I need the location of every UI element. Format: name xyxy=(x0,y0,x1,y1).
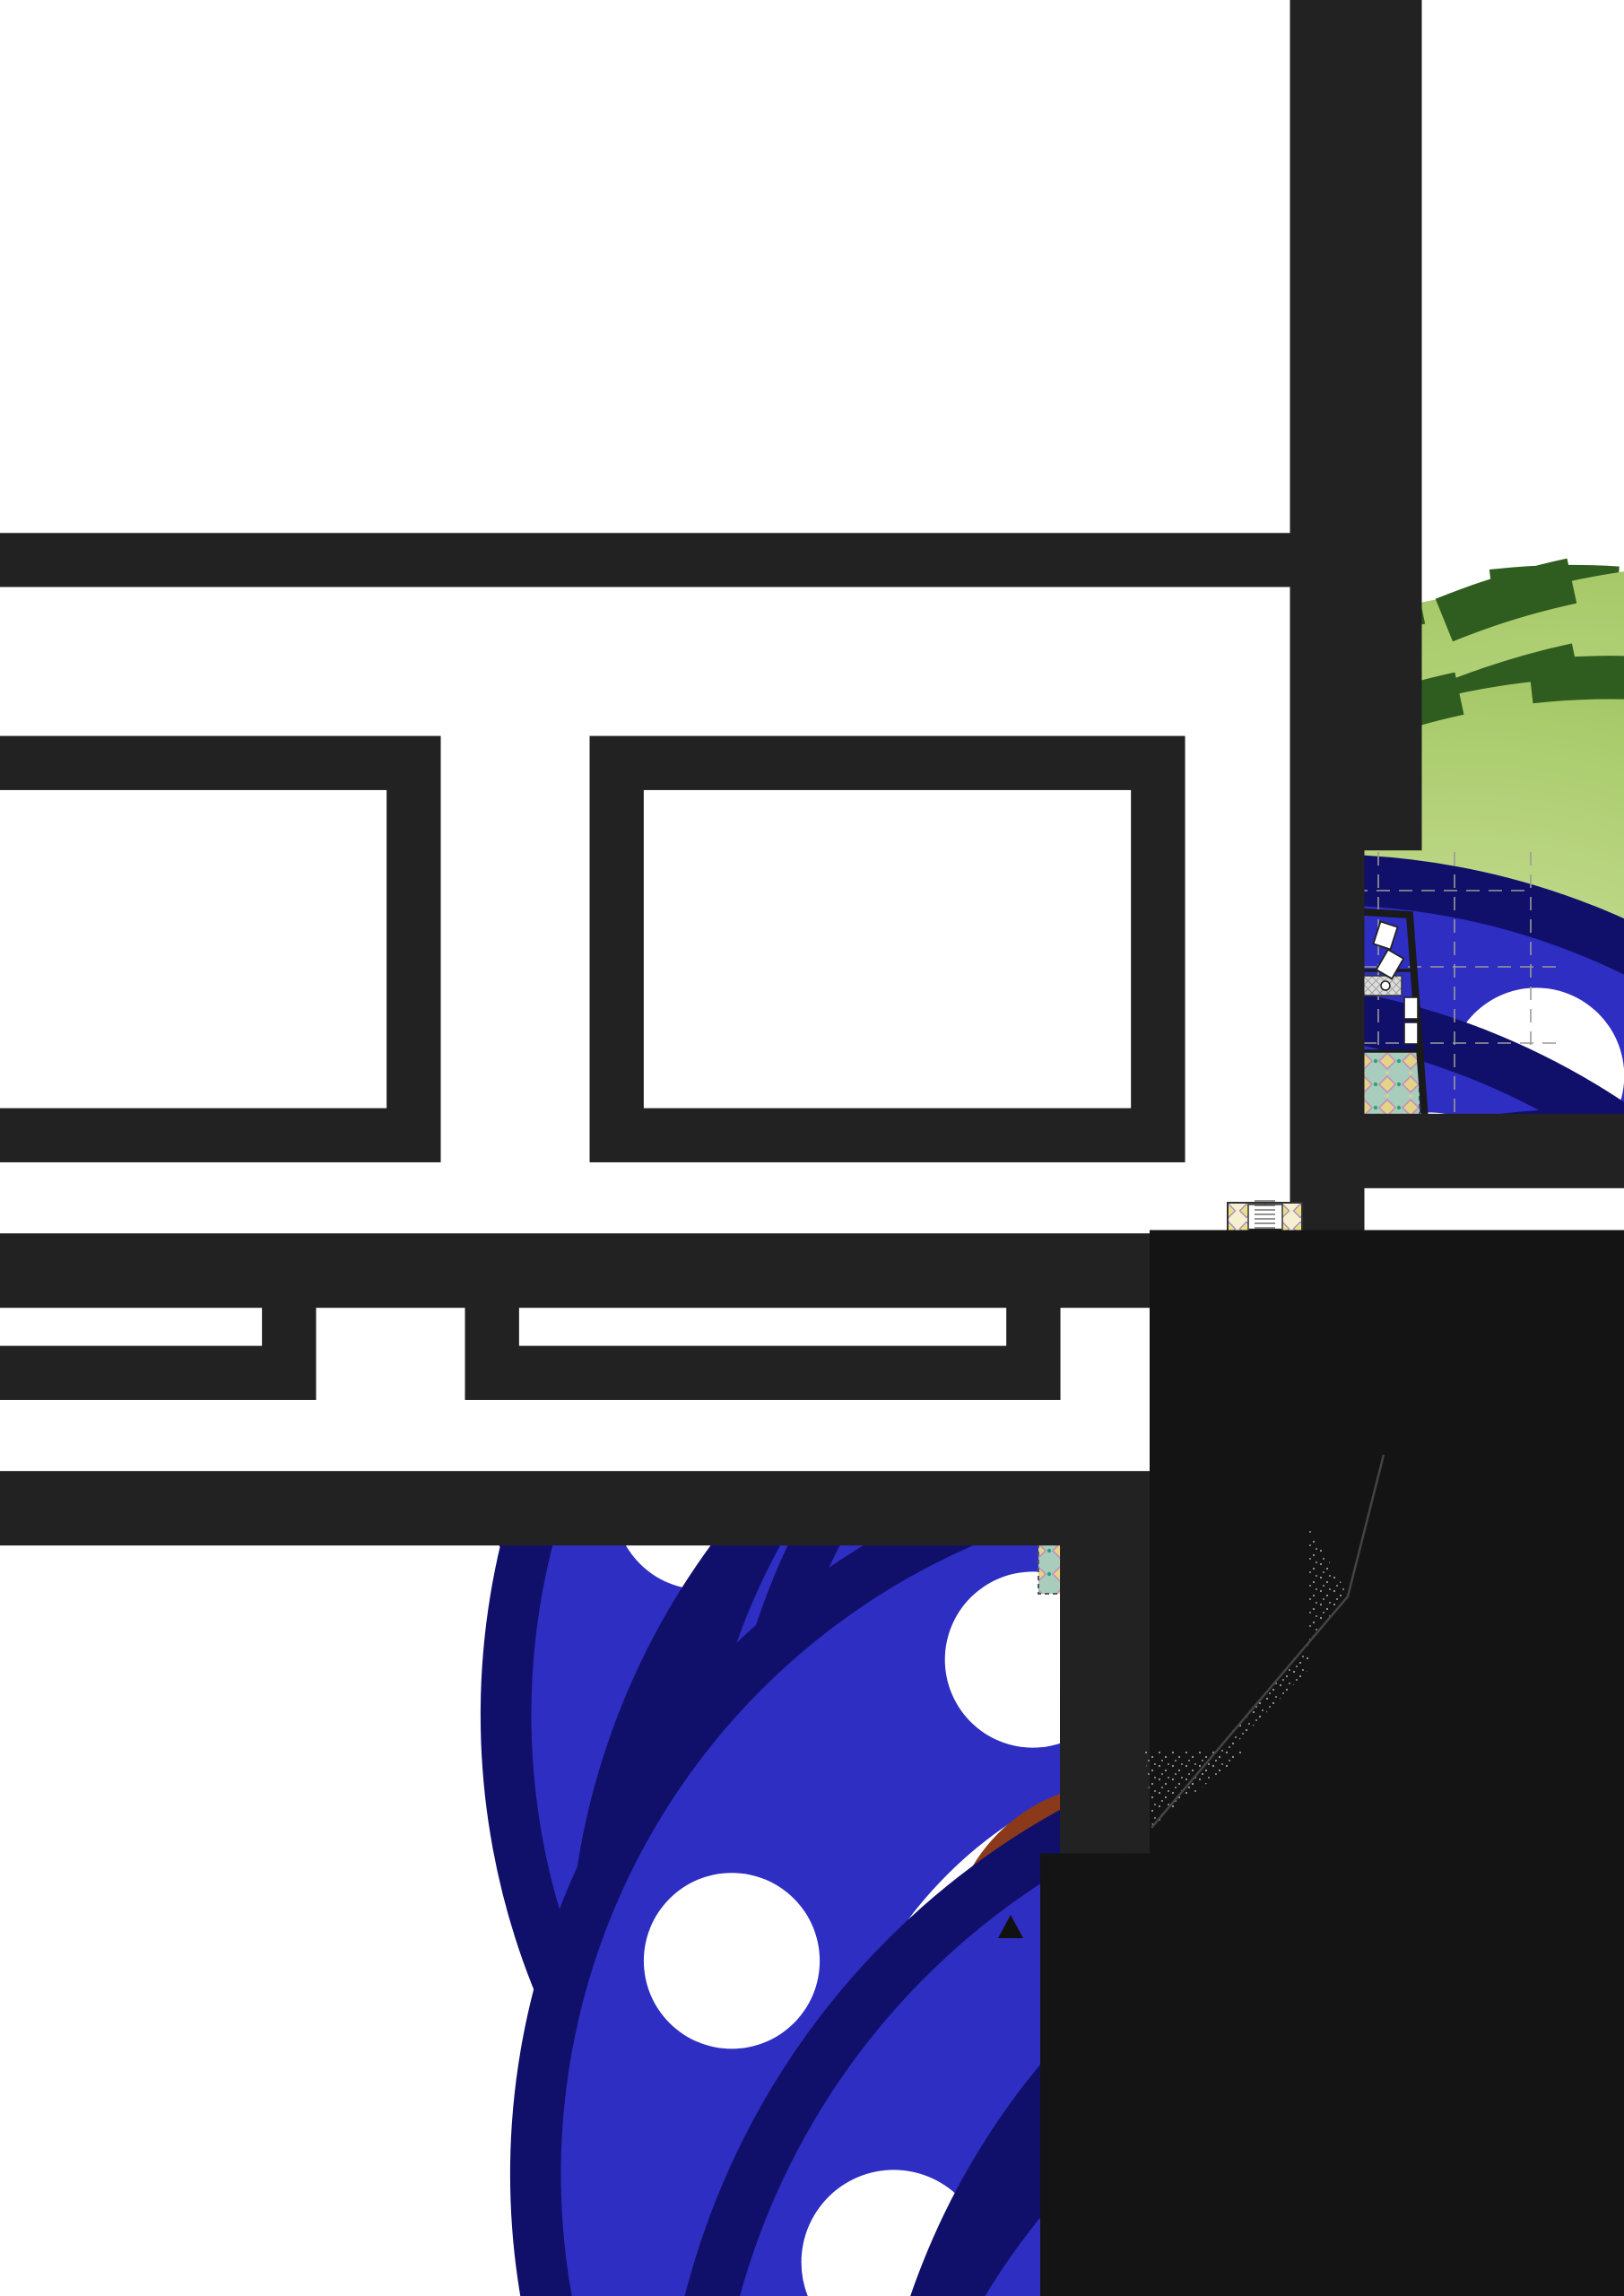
drawing-sheet xyxy=(0,0,1624,2296)
luggage-rack-icon xyxy=(1404,997,1418,1019)
floor-plan-drawing xyxy=(0,0,1624,2296)
toilet-icon xyxy=(1381,981,1390,990)
bed-icon xyxy=(0,0,1327,1271)
luggage-rack-icon xyxy=(1404,1022,1418,1044)
